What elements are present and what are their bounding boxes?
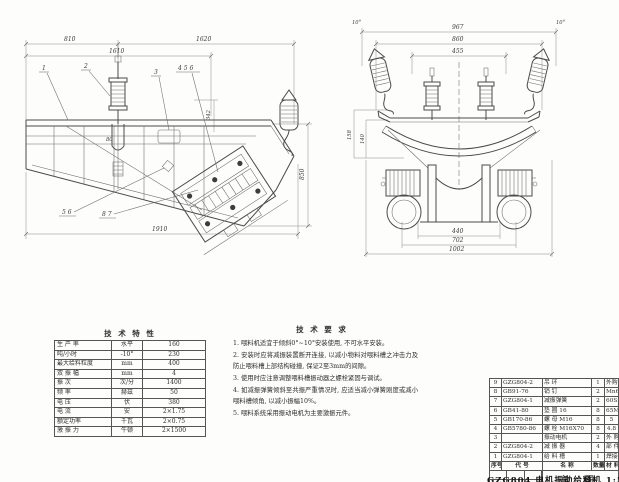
dim-angle-left: 10°	[352, 20, 362, 26]
dim-440: 440	[451, 228, 464, 235]
part-qty: 1	[592, 452, 605, 461]
spec-unit: 千瓦	[112, 417, 143, 427]
spec-label: 频 率	[55, 388, 112, 398]
part-material: 焊接件	[605, 452, 619, 461]
part-name: 给 料 槽	[543, 452, 592, 461]
header-code: 代 号	[502, 461, 543, 470]
spec-value: 4	[143, 369, 206, 379]
spec-value: 160	[143, 341, 206, 351]
vibration-motor-left	[381, 170, 421, 229]
table-row: 最大给料粒度mm400	[55, 360, 206, 370]
part-qty: 4	[592, 443, 605, 452]
part-name: 减 振 器	[543, 443, 592, 452]
header-name: 名 称	[543, 461, 592, 470]
part-qty: 8	[592, 415, 605, 424]
spec-label: 激 振 力	[55, 427, 112, 437]
header-qty: 数量	[592, 461, 605, 470]
dim-810: 810	[64, 36, 76, 43]
spring-hanger-front	[109, 44, 127, 189]
part-seq: 7	[490, 397, 502, 406]
spec-value: 380	[143, 398, 206, 408]
side-view-drawing: 810 1620 1610 850 342 80 1910	[6, 4, 340, 256]
header-seq: 序号	[490, 461, 502, 470]
part-seq: 8	[490, 388, 502, 397]
part-qty: 1	[592, 379, 605, 388]
part-qty: 2	[592, 434, 605, 443]
tech-requirement-item: 2. 安装时应将减振装置断开连接, 以减小物料对喂料槽之冲击力及防止喂料槽上部结…	[226, 350, 418, 373]
table-row: 频 率赫兹50	[55, 388, 206, 398]
part-name: 振动电机	[543, 434, 592, 443]
table-row: 9GZG804-2吊 环1外购	[490, 379, 619, 388]
part-material: 外 购	[605, 434, 619, 443]
hanger-left	[367, 47, 398, 117]
part-material: 60Si2Mn	[605, 397, 619, 406]
dim-455: 455	[451, 48, 464, 55]
hanger-right	[521, 47, 552, 117]
part-qty: 8	[592, 425, 605, 434]
tech-requirement-item: 5. 喂料系统采用振动电机为主要激振元件。	[226, 408, 418, 420]
table-row: 2GZG804-2减 振 器4部 件	[490, 443, 619, 452]
front-view-drawing: 967 860 455 10° 10° 158 140 440	[344, 10, 576, 268]
part-seq: 9	[490, 379, 502, 388]
dim-1910: 1910	[152, 226, 167, 233]
part-seq: 4	[490, 425, 502, 434]
table-row: 6GB41-80垫 圈 16865Mn	[490, 406, 619, 415]
part-name: 销 钉	[543, 388, 592, 397]
spec-value: 230	[143, 350, 206, 360]
spec-label: 双 振 幅	[55, 369, 112, 379]
part-material: Mn65	[605, 388, 619, 397]
table-row: 3振动电机2外 购	[490, 434, 619, 443]
spec-value: 50	[143, 388, 206, 398]
table-row: 吨/小时-10°230	[55, 350, 206, 360]
part-material: 5	[605, 415, 619, 424]
tech-requirement-item: 1. 喂料机适宜于倾斜0°~10°安装使用, 不可水平安装。	[226, 338, 418, 350]
table-row: 电 流安2×1.75	[55, 408, 206, 418]
part-seq: 2	[490, 443, 502, 452]
callout-3: 3	[154, 69, 158, 76]
part-qty: 2	[592, 388, 605, 397]
table-row: 8GB91-76销 钉2Mn65	[490, 388, 619, 397]
tech-requirement-item: 3. 使用时应注意调整喂料槽振动器之螺栓紧固与调试。	[226, 373, 418, 385]
dim-1002: 1002	[449, 246, 464, 253]
spec-label: 振 次	[55, 379, 112, 389]
dim-967: 967	[452, 24, 464, 31]
spec-unit: 赫兹	[112, 388, 143, 398]
table-row: 电 压伏380	[55, 398, 206, 408]
callout-4-5-6: 4 5 6	[177, 65, 193, 72]
spec-label: 电 流	[55, 408, 112, 418]
dim-140: 140	[360, 133, 366, 144]
spec-value: 400	[143, 360, 206, 370]
vibration-motor-right	[497, 170, 537, 229]
part-code: GZG804-2	[502, 443, 543, 452]
dim-angle-right: 10°	[556, 20, 566, 26]
header-material: 材 料	[605, 461, 619, 470]
spec-label: 生 产 率	[55, 341, 112, 351]
spec-unit: mm	[112, 360, 143, 370]
dim-860: 860	[452, 36, 464, 43]
spring-hanger-rear	[280, 90, 298, 156]
part-material: 4.8	[605, 425, 619, 434]
table-row: 激 振 力牛顿2×1500	[55, 427, 206, 437]
table-row: 额定功率千瓦2×0.75	[55, 417, 206, 427]
dim-158: 158	[347, 129, 353, 140]
fastener	[162, 160, 173, 171]
table-row: 4GB5780-86螺 栓 M16X7084.8	[490, 425, 619, 434]
dim-702: 702	[452, 237, 464, 244]
spec-value: 2×1500	[143, 427, 206, 437]
table-row: 振 次次/分1400	[55, 379, 206, 389]
tech-requirements-title: 技 术 要 求	[226, 324, 418, 335]
part-code: GB41-80	[502, 406, 543, 415]
spec-table-title: 技 术 特 性	[54, 328, 206, 339]
trough-front	[378, 62, 540, 190]
part-seq: 6	[490, 406, 502, 415]
table-row: 5GB170-86螺 母 M1685	[490, 415, 619, 424]
bolt-spring-left	[424, 68, 440, 120]
part-name: 吊 环	[543, 379, 592, 388]
spec-unit: 牛顿	[112, 427, 143, 437]
parts-list-table: 9GZG804-2吊 环1外购 8GB91-76销 钉2Mn65 7GZG804…	[489, 378, 619, 482]
part-code: GZG804-1	[502, 452, 543, 461]
part-seq: 3	[490, 434, 502, 443]
dim-342: 342	[206, 110, 212, 120]
callout-5-6: 5 6	[62, 209, 72, 216]
spec-value: 2×0.75	[143, 417, 206, 427]
bolt-spring-right	[478, 68, 494, 120]
spec-unit: 水平	[112, 341, 143, 351]
part-seq: 1	[490, 452, 502, 461]
part-code: GB91-76	[502, 388, 543, 397]
dim-850: 850	[299, 168, 306, 180]
spec-value: 1400	[143, 379, 206, 389]
spec-unit: mm	[112, 369, 143, 379]
spec-unit: 伏	[112, 398, 143, 408]
part-code: GZG804-2	[502, 379, 543, 388]
dim-1620: 1620	[196, 36, 211, 43]
spec-value: 2×1.75	[143, 408, 206, 418]
vibration-motor-side	[166, 142, 288, 255]
technical-requirements: 技 术 要 求 1. 喂料机适宜于倾斜0°~10°安装使用, 不可水平安装。 2…	[226, 324, 418, 419]
spec-label: 额定功率	[55, 417, 112, 427]
dim-1610: 1610	[109, 48, 124, 55]
title-block-footer: GZG804 电机振动给料机 1:5	[487, 474, 619, 482]
inspection-window	[158, 130, 180, 143]
part-qty: 2	[592, 397, 605, 406]
technical-characteristics-table: 技 术 特 性 生 产 率水平160 吨/小时-10°230 最大给料粒度mm4…	[54, 328, 206, 437]
callout-1: 1	[42, 65, 46, 72]
spec-label: 电 压	[55, 398, 112, 408]
part-material: 部 件	[605, 443, 619, 452]
spec-label: 最大给料粒度	[55, 360, 112, 370]
part-name: 垫 圈 16	[543, 406, 592, 415]
part-code: GB5780-86	[502, 425, 543, 434]
callout-8-7: 8 7	[102, 211, 112, 218]
part-code: GB170-86	[502, 415, 543, 424]
spec-label: 吨/小时	[55, 350, 112, 360]
part-name: 减振弹簧	[543, 397, 592, 406]
part-code	[502, 434, 543, 443]
table-row: 双 振 幅mm4	[55, 369, 206, 379]
table-row: 1GZG804-1给 料 槽1焊接件	[490, 452, 619, 461]
parts-header-row: 序号代 号名 称数量材 料	[490, 461, 619, 470]
part-qty: 8	[592, 406, 605, 415]
callout-2: 2	[83, 63, 88, 70]
spec-unit: 次/分	[112, 379, 143, 389]
part-seq: 5	[490, 415, 502, 424]
table-row: 7GZG804-1减振弹簧260Si2Mn	[490, 397, 619, 406]
spec-unit: 安	[112, 408, 143, 418]
table-row: 生 产 率水平160	[55, 341, 206, 351]
part-code: GZG804-1	[502, 397, 543, 406]
part-material: 65Mn	[605, 406, 619, 415]
tech-requirement-item: 4. 如减振弹簧倾斜至共振严重情况时, 应适当减小弹簧刚度或减小喂料槽倾角, 以…	[226, 385, 418, 408]
part-material: 外购	[605, 379, 619, 388]
part-name: 螺 栓 M16X70	[543, 425, 592, 434]
part-name: 螺 母 M16	[543, 415, 592, 424]
front-view-dimensions: 967 860 455 10° 10° 158 140 440	[347, 20, 566, 257]
spec-unit: -10°	[112, 350, 143, 360]
engineering-drawing-sheet: 810 1620 1610 850 342 80 1910	[0, 0, 619, 482]
